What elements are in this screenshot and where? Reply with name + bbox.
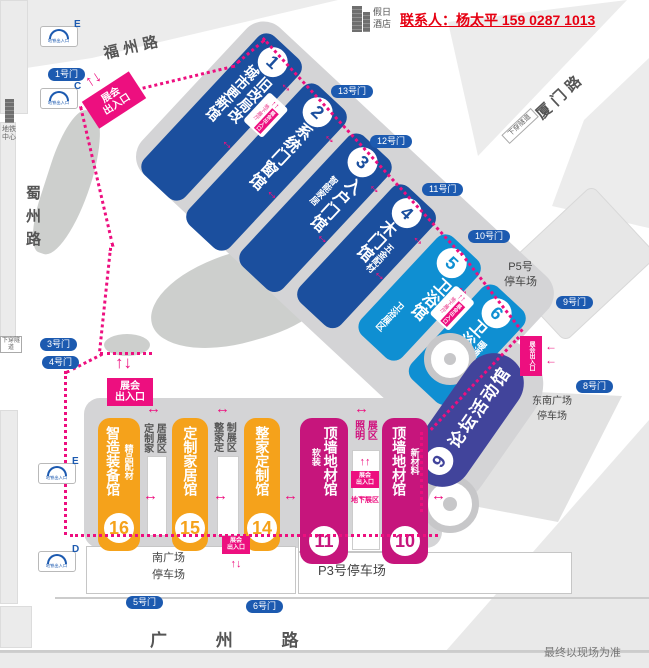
metro-exit-letter: E bbox=[74, 19, 81, 30]
metro-exit-E-north: 地铁出入口 bbox=[40, 26, 78, 47]
entrance-label-line2: 出入口 bbox=[356, 480, 374, 487]
metro-exit-C: 地铁出入口 bbox=[40, 88, 78, 109]
hall-15-number: 15 bbox=[175, 513, 205, 543]
hall-16: 智造装备馆 精品配材 16 bbox=[98, 418, 140, 551]
hotel-building-icon bbox=[363, 12, 370, 32]
entrance-label: 展会出入口 bbox=[528, 341, 534, 371]
south-line1: 南广场 bbox=[152, 550, 185, 567]
gap-arrow: ↔ bbox=[213, 488, 228, 503]
entrance-arrows-icon: ↑↑ bbox=[360, 456, 371, 468]
gate-9: 9号门 bbox=[556, 296, 593, 309]
road-label-guangzhou: 广 州 路 bbox=[150, 626, 320, 651]
entrance-arrows-icon: ↑↓ bbox=[231, 558, 242, 570]
metro-wave-icon bbox=[49, 91, 69, 101]
p5-parking-label: P5号 停车场 bbox=[504, 260, 537, 291]
tunnel-badge-west: 下穿隧道 bbox=[0, 336, 22, 353]
metro-exit-D: 地铁出入口 bbox=[38, 551, 76, 572]
hall-10-subname-col: 新材料 bbox=[409, 448, 419, 496]
southeast-plaza-parking-label: 东南广场 停车场 bbox=[532, 394, 572, 424]
hall-10-name: 顶墙地材馆 新材料 bbox=[391, 426, 418, 496]
route-segment bbox=[70, 534, 438, 537]
hall-11-name-col: 顶墙地材馆 bbox=[323, 426, 338, 496]
hall-11: 软装 顶墙地材馆 11 bbox=[300, 418, 348, 564]
entrance-arrows-icon: ↑↓ bbox=[115, 354, 132, 371]
zone-label-col: 制展区 bbox=[224, 422, 235, 452]
entrance-arrows-icon: ← bbox=[545, 340, 557, 352]
gap-arrow: ↔ bbox=[283, 488, 298, 503]
road-label-xiamen: 厦门路 bbox=[531, 67, 589, 123]
west-building-strip-2 bbox=[0, 122, 16, 350]
hall-15: 定制家居馆 15 bbox=[172, 418, 208, 551]
gap-arrow: ↔ bbox=[354, 401, 369, 416]
gate-10: 10号门 bbox=[468, 230, 510, 243]
hotel-line2: 酒店 bbox=[373, 19, 391, 31]
gate-5: 5号门 bbox=[126, 596, 163, 609]
metro-wave-icon bbox=[47, 466, 67, 476]
metro-exit-E-south: 地铁出入口 bbox=[38, 463, 76, 484]
road-label-fuzhou: 福州路 bbox=[101, 30, 164, 64]
route-segment bbox=[420, 432, 423, 512]
gate-1: 1号门 bbox=[48, 68, 85, 81]
west-building-strip-1 bbox=[0, 0, 28, 114]
hall-16-name-col: 智造装备馆 bbox=[105, 426, 120, 496]
southeast-line2: 停车场 bbox=[532, 409, 572, 424]
metro-exit-letter: C bbox=[74, 81, 81, 92]
gate-13: 13号门 bbox=[331, 85, 373, 98]
hall-16-subname-col: 精品配材 bbox=[123, 444, 133, 496]
gate-8: 8号门 bbox=[576, 380, 613, 393]
zone-label-col: 展区 bbox=[365, 420, 376, 440]
expo-entrance-badge: 展会 出入口 bbox=[351, 471, 379, 488]
metro-wave-icon bbox=[49, 29, 69, 39]
entrance-label-line2: 出入口 bbox=[227, 545, 245, 552]
metro-exit-letter: E bbox=[72, 456, 79, 467]
underground-zone-label: 地下展区 bbox=[351, 497, 379, 504]
west-building-strip-3 bbox=[0, 410, 18, 604]
zone-whole-home: 整家定 制展区 bbox=[211, 422, 234, 452]
hall-15-name: 定制家居馆 bbox=[183, 426, 198, 496]
route-segment bbox=[98, 248, 112, 352]
road-label-shuzhou: 蜀州路 bbox=[22, 185, 43, 254]
south-plaza-parking-label: 南广场 停车场 bbox=[152, 550, 185, 583]
south-line2: 停车场 bbox=[152, 567, 185, 584]
roundabout-core bbox=[444, 353, 456, 365]
expo-entrance-west: ↑↓ 展会 出入口 bbox=[107, 352, 153, 406]
metro-exit-label: 地铁出入口 bbox=[46, 564, 67, 568]
hall-15-name-col: 定制家居馆 bbox=[183, 426, 198, 496]
hall-14-name-col: 整家定制馆 bbox=[255, 426, 270, 496]
hotel-label: 假日 酒店 bbox=[373, 7, 391, 30]
hotel-building-icon bbox=[352, 6, 362, 32]
gate-4: 4号门 bbox=[42, 356, 79, 369]
hall-16-name: 智造装备馆 精品配材 bbox=[105, 426, 132, 496]
expo-entrance-south: 展会 出入口 ↑↓ bbox=[220, 536, 252, 572]
p5-line2: 停车场 bbox=[504, 275, 537, 290]
expo-entrance-badge: 展会 出入口 bbox=[107, 378, 153, 406]
expo-map: 1 城市更新馆 旧改局改 2 系统门窗馆 3 智能家居 入户门馆 4 木门馆 五… bbox=[0, 0, 649, 668]
tunnel-badge-east: 下穿隧道 bbox=[501, 108, 538, 144]
hall-11-subname-col: 软装 bbox=[310, 448, 320, 496]
zone-custom-home: 定制家 居展区 bbox=[141, 423, 164, 453]
zone-label-col: 定制家 bbox=[141, 423, 152, 453]
expo-entrance-badge: 展会 出入口 bbox=[222, 536, 250, 554]
zone-label-col: 整家定 bbox=[211, 422, 222, 452]
metro-exit-label: 地铁出入口 bbox=[46, 476, 67, 480]
hall-11-name: 软装 顶墙地材馆 bbox=[310, 426, 337, 496]
gate-11: 11号门 bbox=[422, 183, 463, 196]
gate-3: 3号门 bbox=[40, 338, 77, 351]
entrance-label-line2: 出入口 bbox=[115, 392, 145, 404]
entrance-arrows-icon: ← bbox=[545, 354, 557, 366]
hall-10-name-col: 顶墙地材馆 bbox=[391, 426, 406, 496]
zone-lighting: 照明 展区 bbox=[352, 420, 375, 440]
contact-link[interactable]: 联系人：杨太平 159 0287 1013 bbox=[400, 10, 595, 30]
expo-entrance-center-south: ↑↑ 展会 出入口 地下展区 bbox=[350, 452, 380, 507]
south-plaza-parking-block bbox=[86, 546, 296, 594]
southwest-corner-block bbox=[0, 606, 32, 648]
p5-line1: P5号 bbox=[504, 260, 537, 275]
metro-center-label: 地铁 中心 bbox=[1, 126, 17, 143]
hall-14-name: 整家定制馆 bbox=[255, 426, 270, 496]
metro-exit-letter: D bbox=[72, 544, 79, 555]
metro-exit-label: 地铁出入口 bbox=[48, 101, 69, 105]
gap-arrow: ↔ bbox=[215, 401, 230, 416]
zone-label-col: 居展区 bbox=[154, 423, 165, 453]
entrance-label-line1: 展会 bbox=[359, 473, 371, 480]
gate-12: 12号门 bbox=[370, 135, 412, 148]
hotel-line1: 假日 bbox=[373, 7, 391, 19]
gate-6: 6号门 bbox=[246, 600, 283, 613]
metro-center-building-icon bbox=[5, 99, 14, 123]
route-segment bbox=[64, 371, 67, 535]
hall-16-number: 16 bbox=[104, 513, 134, 543]
expo-entrance-east-badge: 展会出入口 bbox=[520, 336, 542, 376]
gap-arrow: ↔ bbox=[431, 488, 446, 503]
metro-center-line2: 中心 bbox=[1, 134, 17, 142]
southeast-line1: 东南广场 bbox=[532, 394, 572, 409]
metro-exit-label: 地铁出入口 bbox=[48, 39, 69, 43]
zone-label-col: 照明 bbox=[352, 420, 363, 440]
footnote: 最终以现场为准 bbox=[544, 644, 621, 660]
entrance-label-line1: 展会 bbox=[230, 538, 242, 545]
hall-11-number: 11 bbox=[309, 526, 339, 556]
hall-10-number: 10 bbox=[390, 526, 420, 556]
entrance-label-line1: 展会 bbox=[120, 381, 140, 393]
metro-wave-icon bbox=[47, 554, 67, 564]
gap-arrow: ↔ bbox=[143, 488, 158, 503]
hall-14: 整家定制馆 14 bbox=[244, 418, 280, 551]
